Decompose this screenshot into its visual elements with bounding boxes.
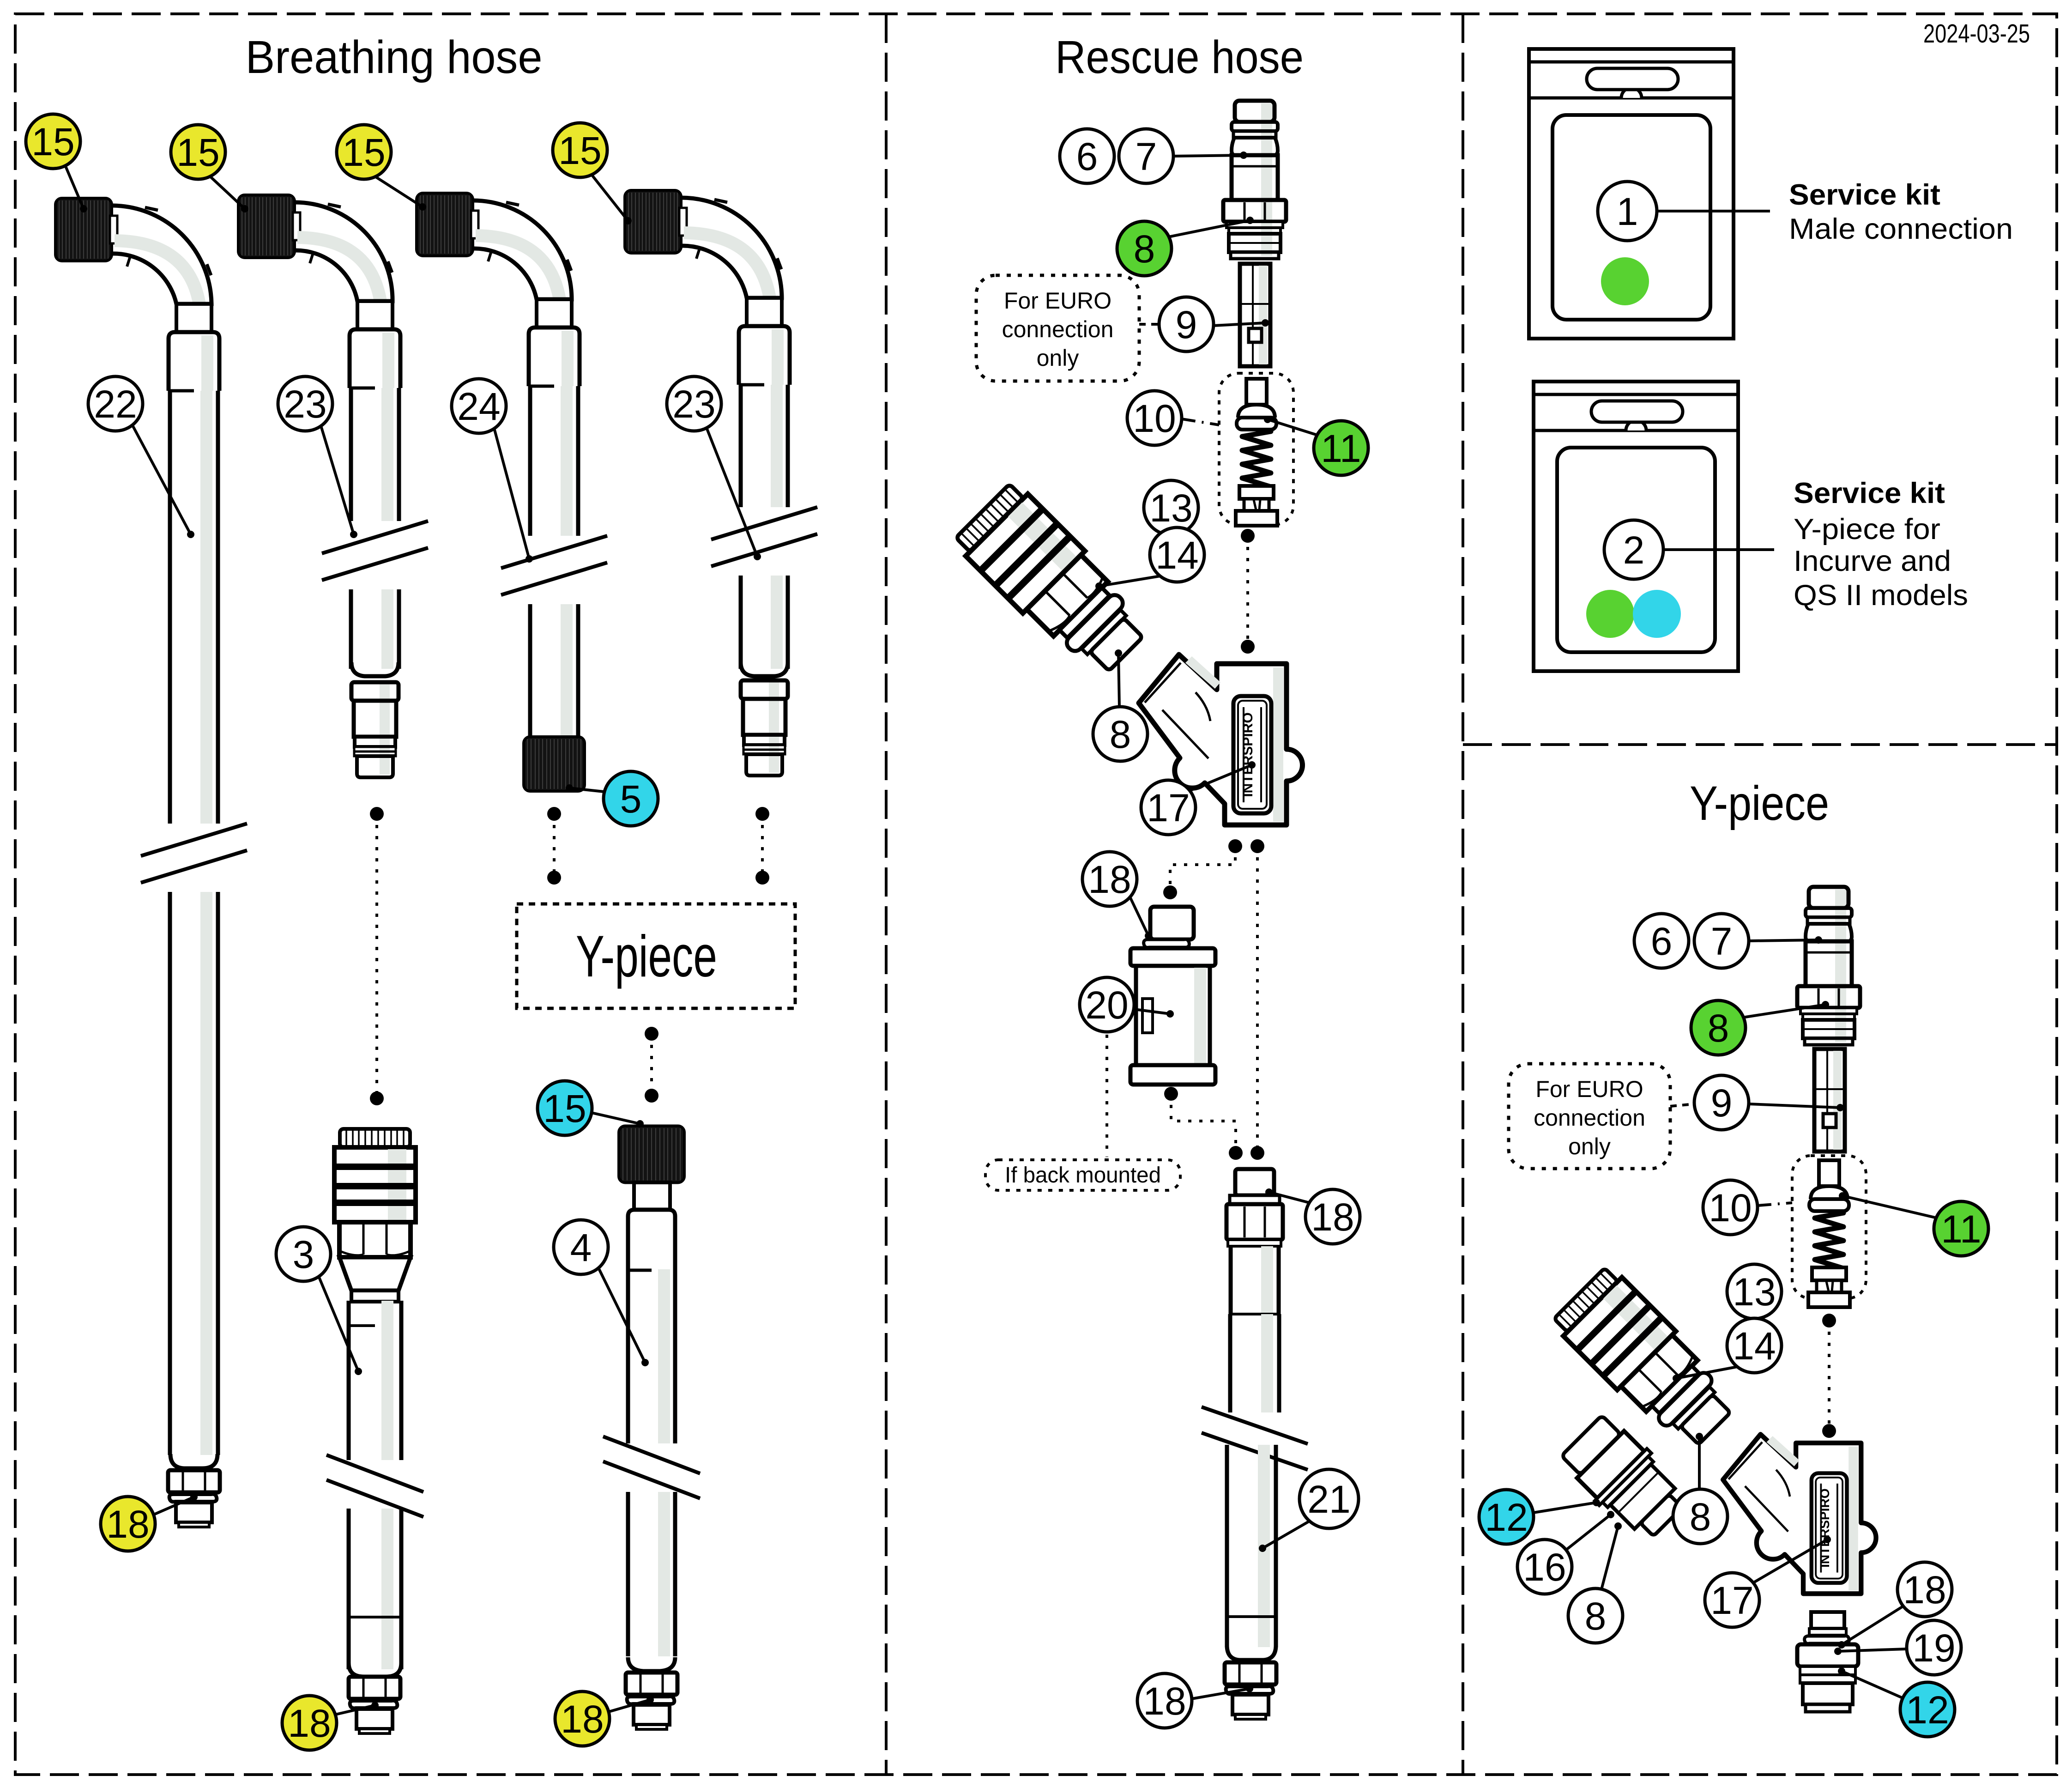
svg-text:17: 17 — [1147, 786, 1190, 830]
svg-text:Y-piece for: Y-piece for — [1794, 513, 1940, 545]
svg-text:7: 7 — [1711, 920, 1733, 963]
svg-text:connection: connection — [1002, 316, 1114, 342]
svg-text:Rescue hose: Rescue hose — [1055, 31, 1304, 83]
svg-text:18: 18 — [288, 1702, 331, 1745]
svg-text:2: 2 — [1623, 528, 1645, 572]
svg-text:For EURO: For EURO — [1004, 288, 1112, 314]
svg-text:6: 6 — [1651, 920, 1673, 963]
svg-text:Service kit: Service kit — [1794, 477, 1945, 509]
svg-text:10: 10 — [1709, 1186, 1752, 1230]
svg-text:13: 13 — [1149, 486, 1192, 530]
svg-text:18: 18 — [561, 1697, 604, 1741]
svg-text:only: only — [1568, 1133, 1611, 1159]
svg-text:16: 16 — [1523, 1546, 1566, 1589]
svg-text:INTERSPIRO: INTERSPIRO — [1240, 712, 1256, 797]
svg-text:14: 14 — [1155, 533, 1198, 577]
svg-text:19: 19 — [1912, 1626, 1955, 1670]
svg-text:connection: connection — [1534, 1105, 1645, 1131]
svg-text:21: 21 — [1307, 1478, 1350, 1521]
svg-text:8: 8 — [1708, 1006, 1729, 1050]
svg-text:9: 9 — [1176, 303, 1197, 346]
svg-text:18: 18 — [1903, 1568, 1946, 1612]
svg-text:10: 10 — [1133, 397, 1176, 440]
svg-text:1: 1 — [1617, 190, 1638, 233]
svg-text:Male connection: Male connection — [1789, 213, 2013, 245]
svg-text:INTERSPIRO: INTERSPIRO — [1818, 1488, 1832, 1567]
svg-text:18: 18 — [1311, 1195, 1354, 1239]
svg-text:15: 15 — [342, 131, 385, 174]
svg-text:7: 7 — [1136, 135, 1157, 178]
svg-text:17: 17 — [1710, 1579, 1753, 1622]
svg-text:Incurve and: Incurve and — [1794, 545, 1951, 577]
svg-text:5: 5 — [620, 777, 642, 821]
svg-text:Y-piece: Y-piece — [576, 923, 717, 989]
svg-text:Y-piece: Y-piece — [1690, 776, 1829, 830]
svg-text:12: 12 — [1485, 1496, 1528, 1539]
svg-text:14: 14 — [1733, 1324, 1776, 1368]
svg-text:15: 15 — [543, 1087, 586, 1130]
svg-text:11: 11 — [1941, 1207, 1981, 1251]
svg-text:8: 8 — [1585, 1594, 1607, 1638]
svg-text:Service kit: Service kit — [1789, 179, 1940, 211]
svg-text:If back mounted: If back mounted — [1005, 1163, 1161, 1188]
svg-text:15: 15 — [176, 131, 219, 174]
svg-text:8: 8 — [1690, 1495, 1711, 1539]
svg-text:13: 13 — [1733, 1270, 1776, 1314]
svg-text:24: 24 — [457, 385, 500, 428]
svg-text:18: 18 — [106, 1503, 149, 1546]
svg-text:Breathing hose: Breathing hose — [246, 31, 543, 83]
svg-text:9: 9 — [1711, 1081, 1733, 1125]
svg-text:15: 15 — [558, 129, 601, 172]
svg-text:8: 8 — [1134, 227, 1155, 271]
svg-text:23: 23 — [672, 382, 715, 426]
svg-text:6: 6 — [1076, 135, 1098, 178]
svg-text:3: 3 — [293, 1233, 314, 1276]
svg-text:11: 11 — [1321, 427, 1361, 470]
svg-text:8: 8 — [1110, 713, 1131, 756]
svg-text:18: 18 — [1088, 858, 1131, 901]
svg-text:23: 23 — [284, 382, 326, 426]
svg-text:18: 18 — [1143, 1679, 1186, 1723]
svg-text:4: 4 — [570, 1226, 592, 1269]
svg-text:2024-03-25: 2024-03-25 — [1923, 19, 2030, 48]
svg-text:20: 20 — [1085, 983, 1128, 1027]
svg-text:QS II models: QS II models — [1794, 579, 1968, 612]
svg-text:12: 12 — [1906, 1688, 1949, 1732]
svg-text:only: only — [1037, 345, 1079, 371]
svg-text:15: 15 — [31, 120, 74, 164]
svg-text:22: 22 — [94, 382, 137, 426]
svg-text:For EURO: For EURO — [1535, 1076, 1643, 1102]
